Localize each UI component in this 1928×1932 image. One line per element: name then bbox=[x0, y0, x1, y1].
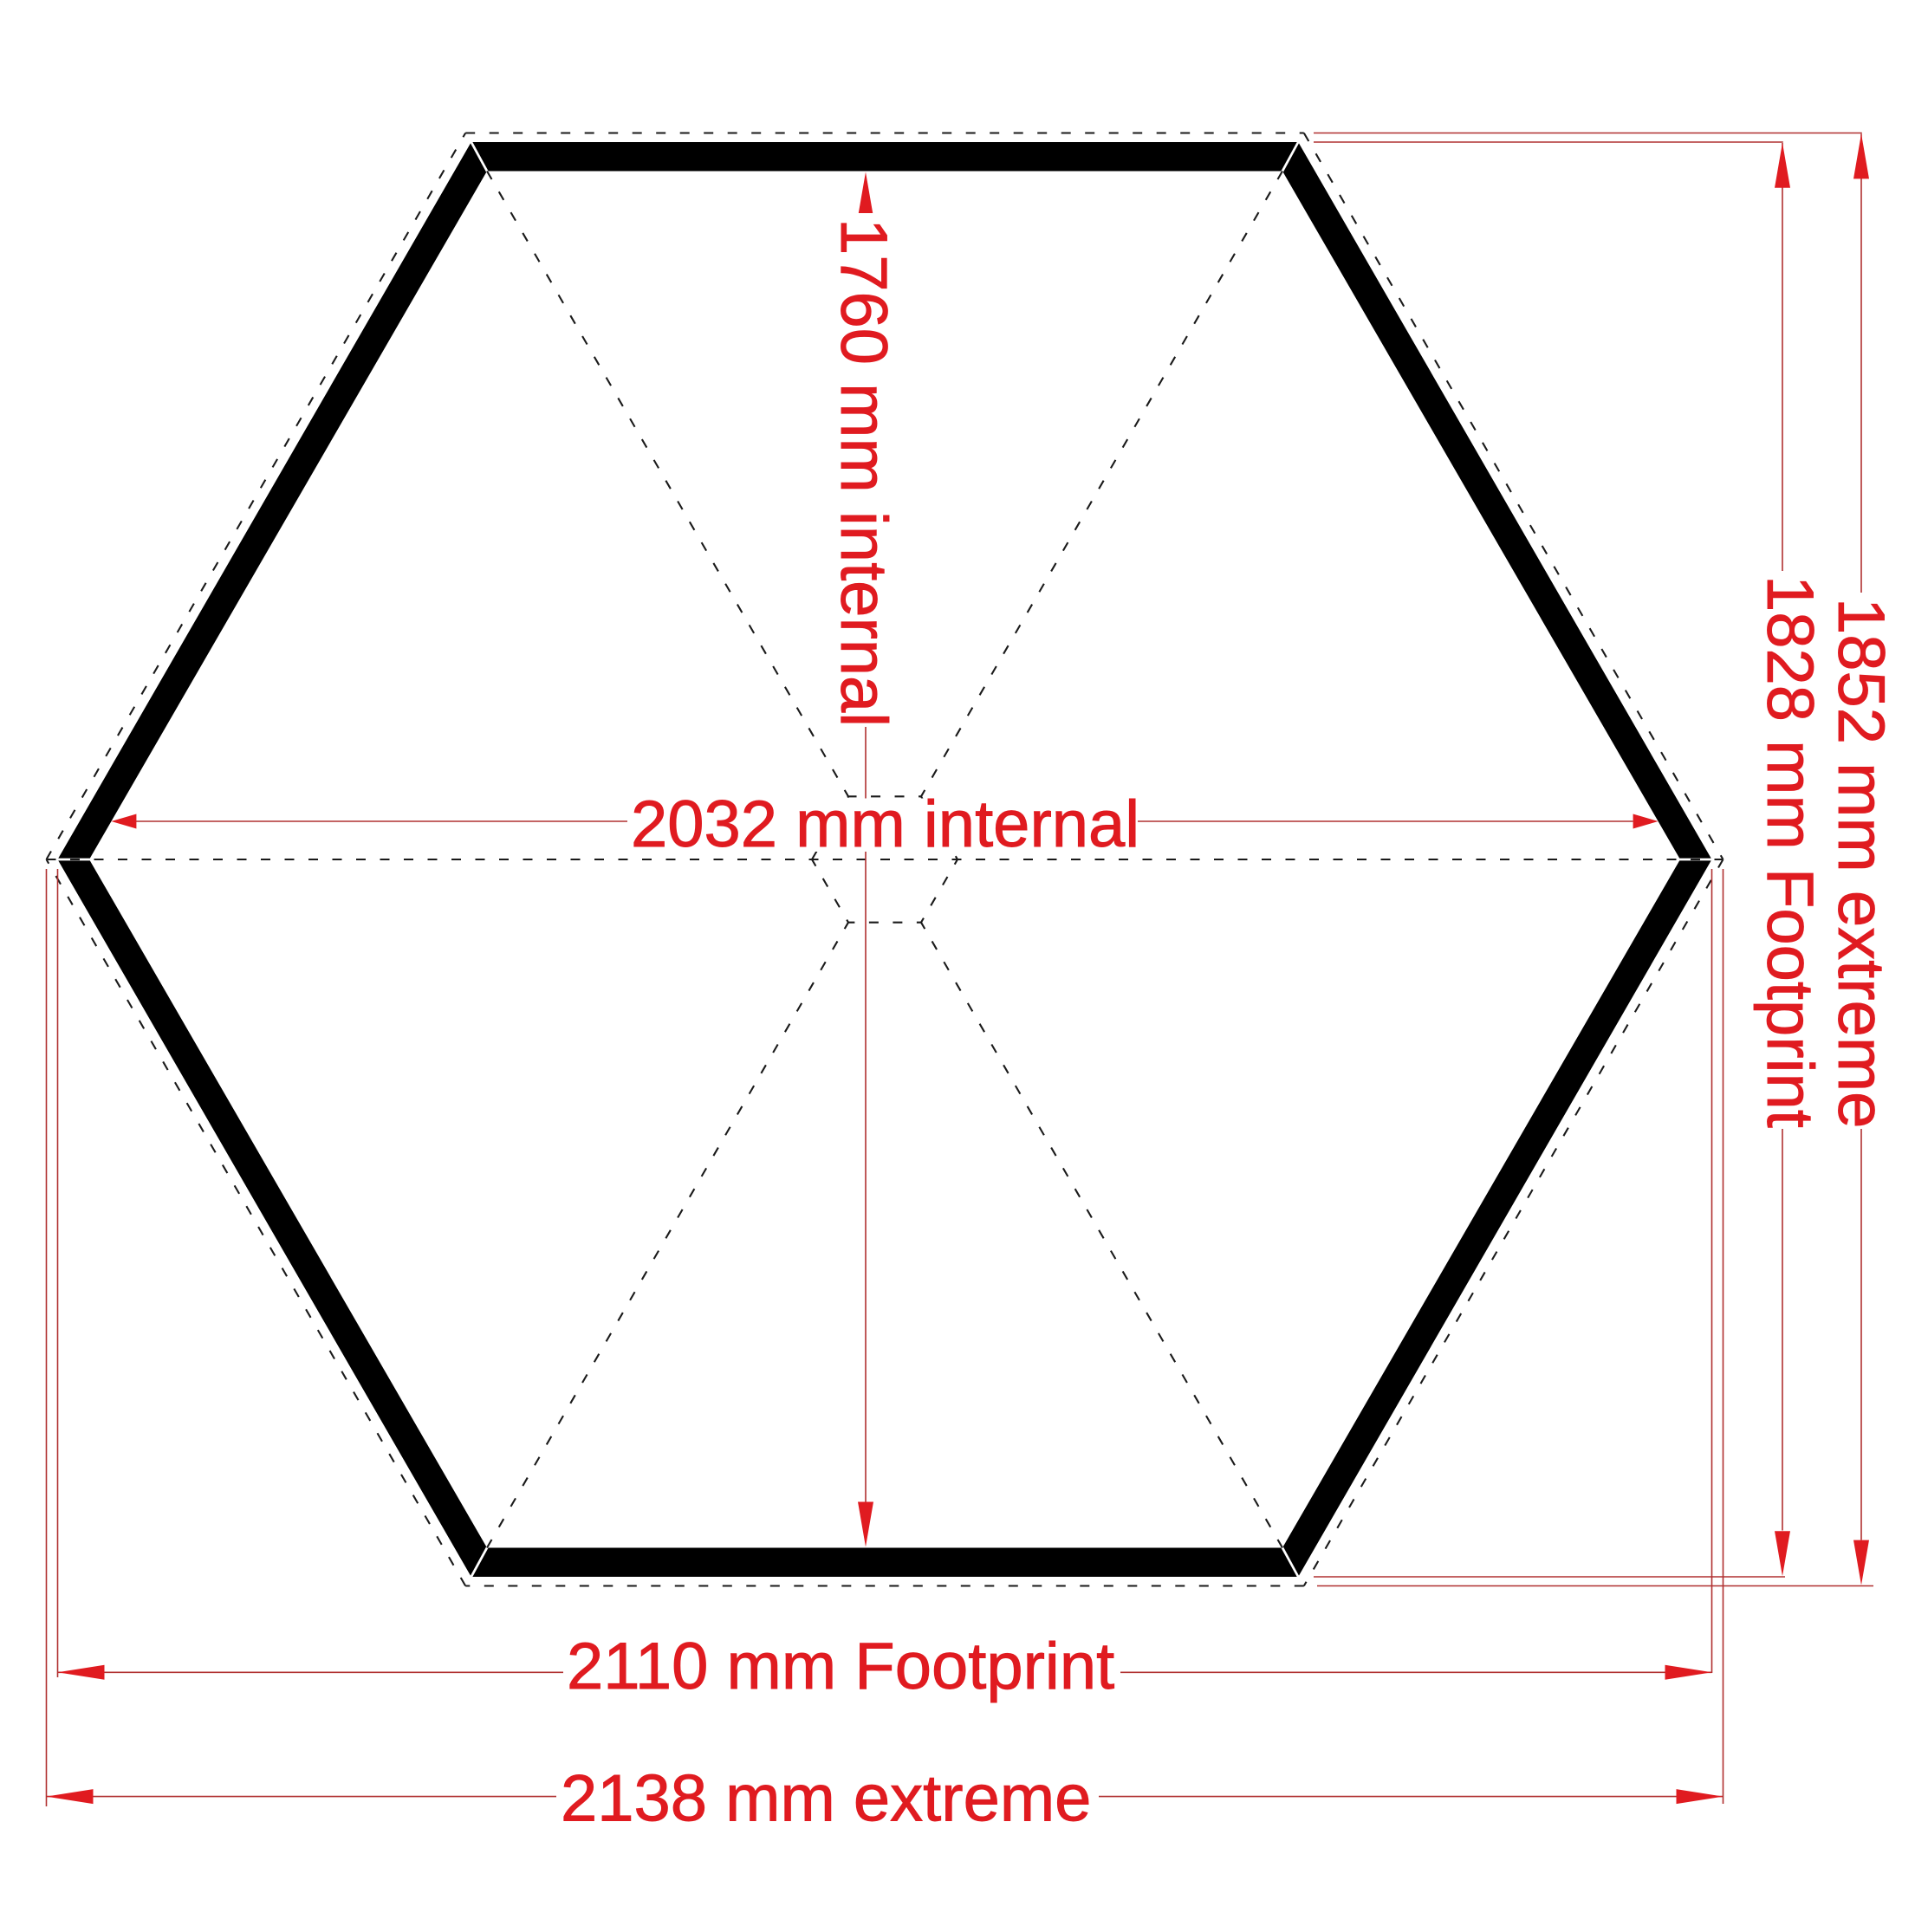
svg-text:2032 mm internal: 2032 mm internal bbox=[631, 788, 1139, 861]
svg-text:1760 mm internal: 1760 mm internal bbox=[827, 218, 900, 727]
svg-text:2138 mm extreme: 2138 mm extreme bbox=[561, 1762, 1091, 1836]
svg-text:1852 mm extreme: 1852 mm extreme bbox=[1824, 598, 1898, 1128]
svg-text:2110 mm Footprint: 2110 mm Footprint bbox=[567, 1630, 1114, 1703]
svg-text:1828 mm Footprint: 1828 mm Footprint bbox=[1753, 575, 1827, 1128]
